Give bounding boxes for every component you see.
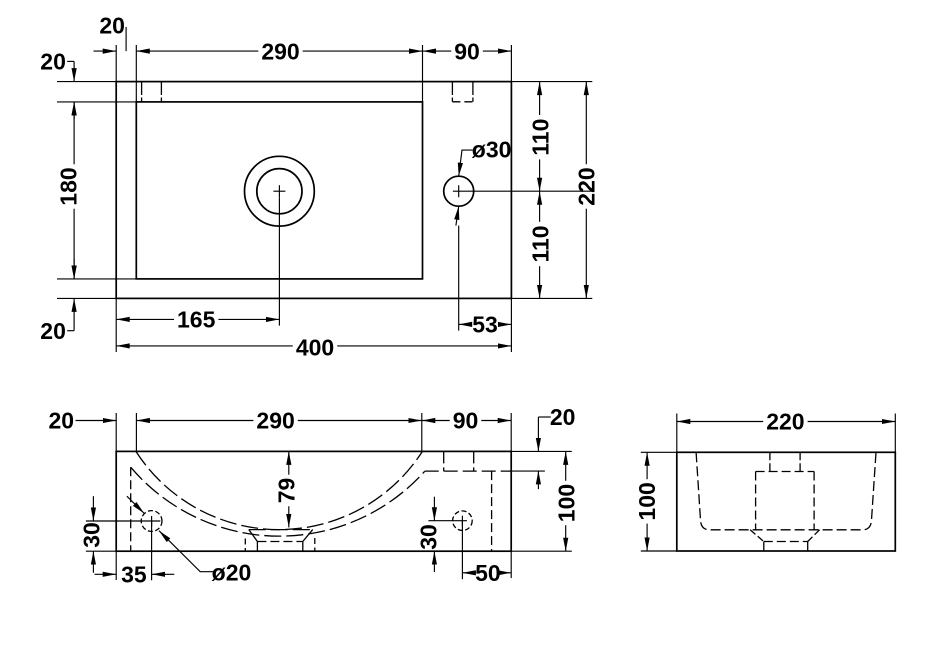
svg-text:20: 20 xyxy=(99,12,125,38)
svg-text:90: 90 xyxy=(454,38,480,64)
svg-text:79: 79 xyxy=(274,478,300,504)
svg-text:100: 100 xyxy=(554,484,580,522)
svg-text:30: 30 xyxy=(416,524,442,550)
svg-text:90: 90 xyxy=(453,408,479,434)
svg-text:20: 20 xyxy=(550,404,576,430)
svg-text:180: 180 xyxy=(56,167,82,205)
svg-text:400: 400 xyxy=(296,334,334,360)
svg-text:20: 20 xyxy=(40,318,66,344)
svg-text:290: 290 xyxy=(256,408,294,434)
svg-text:20: 20 xyxy=(40,49,66,75)
svg-text:30: 30 xyxy=(79,522,105,548)
svg-text:220: 220 xyxy=(766,409,804,435)
svg-text:100: 100 xyxy=(634,482,660,520)
svg-text:110: 110 xyxy=(527,119,553,156)
svg-text:50: 50 xyxy=(475,560,501,586)
svg-text:ø30: ø30 xyxy=(472,136,512,162)
svg-text:ø20: ø20 xyxy=(212,559,252,585)
svg-text:20: 20 xyxy=(49,408,75,434)
svg-text:165: 165 xyxy=(177,307,216,333)
svg-text:53: 53 xyxy=(472,312,498,338)
svg-text:220: 220 xyxy=(574,167,600,205)
svg-text:290: 290 xyxy=(261,38,299,64)
svg-text:35: 35 xyxy=(121,562,147,588)
svg-text:110: 110 xyxy=(527,225,553,262)
